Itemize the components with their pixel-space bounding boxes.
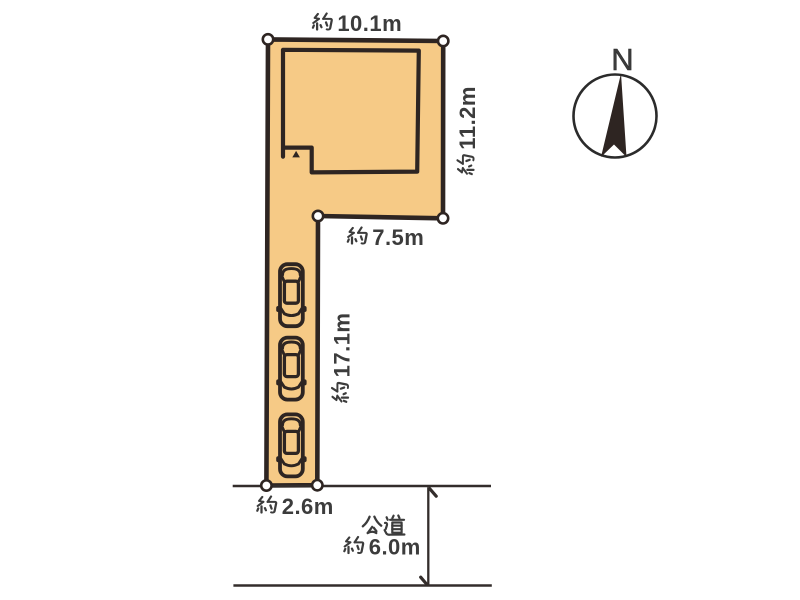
svg-text:6.0m: 6.0m — [369, 535, 421, 560]
svg-text:2.6m: 2.6m — [282, 494, 334, 519]
svg-text:17.1m: 17.1m — [330, 313, 355, 378]
svg-text:N: N — [611, 42, 633, 77]
svg-text:11.2m: 11.2m — [455, 86, 480, 150]
svg-text:7.5m: 7.5m — [372, 225, 424, 250]
svg-text:10.1m: 10.1m — [337, 11, 402, 36]
